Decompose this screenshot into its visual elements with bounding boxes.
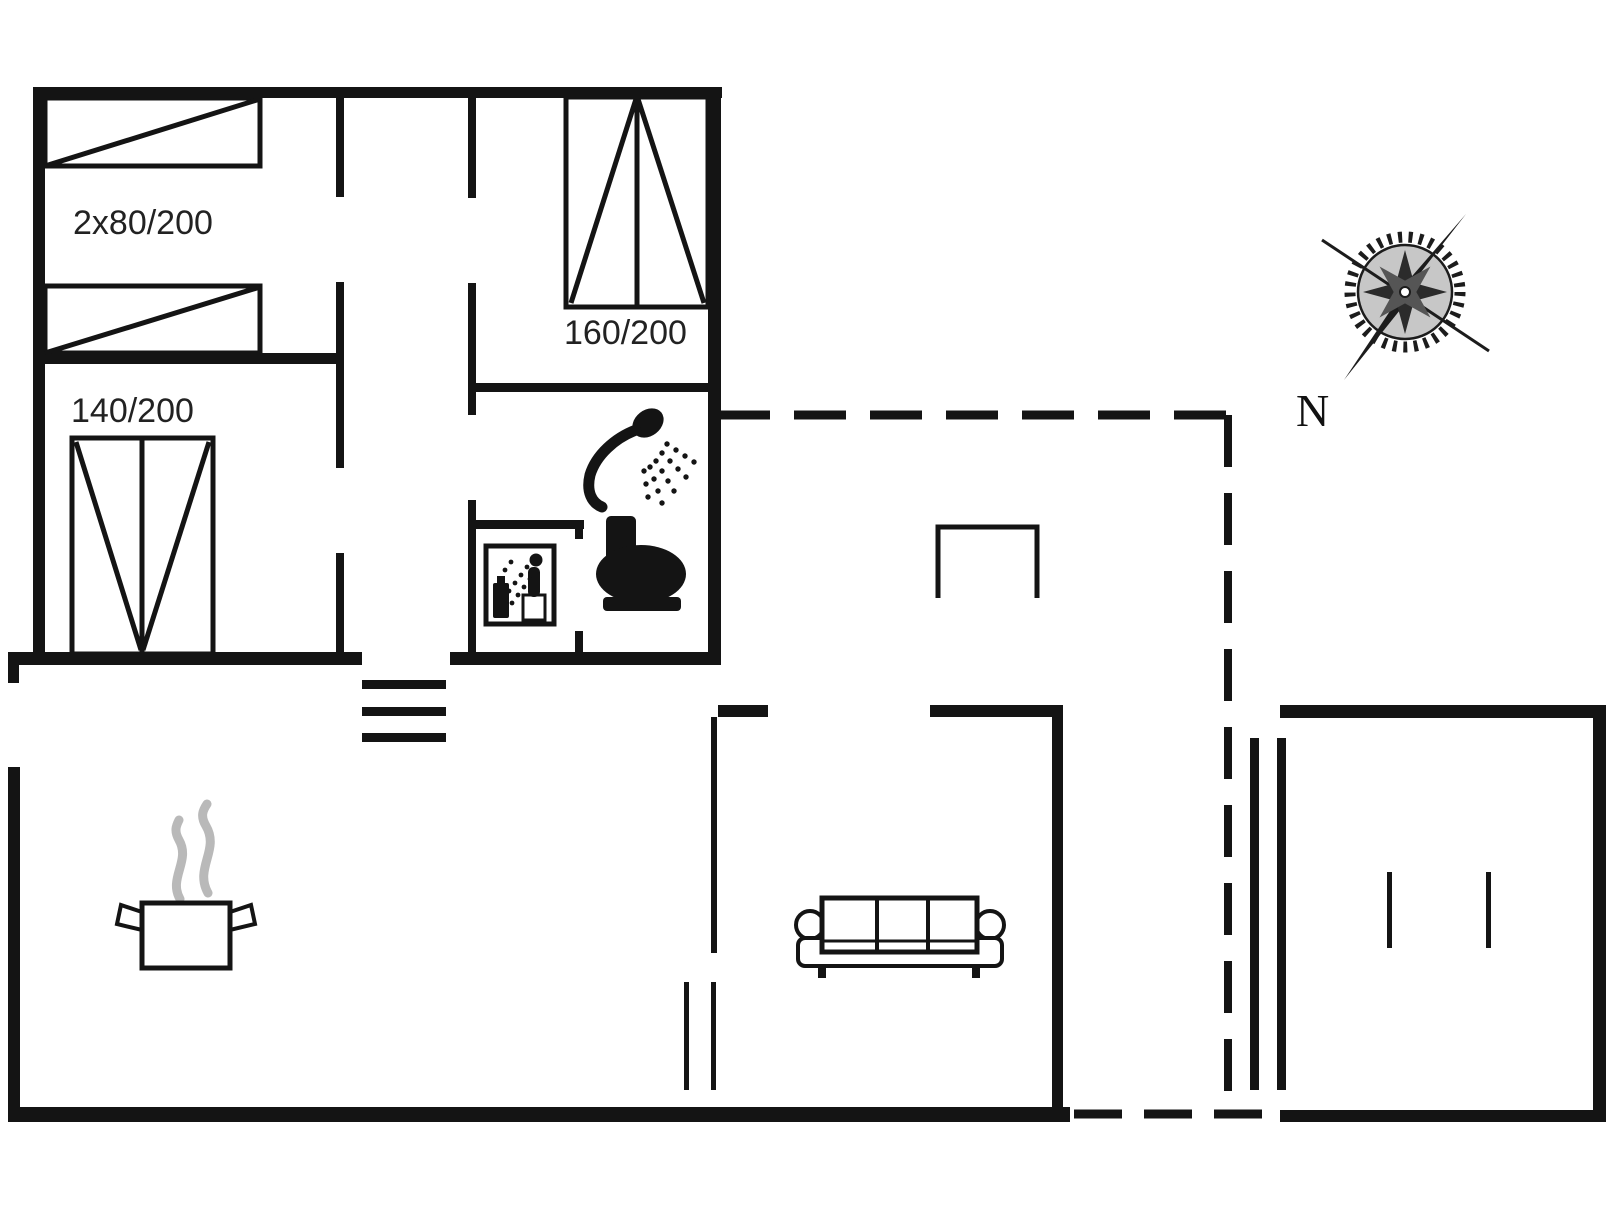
bed-icon (72, 438, 213, 654)
floor-plan-canvas: 2x80/200 140/200 160/200 N (0, 0, 1606, 1205)
bed-icon (566, 97, 708, 307)
steam-icon (176, 804, 210, 899)
furniture-layer (0, 0, 1606, 1205)
cooking-pot-icon (117, 903, 255, 968)
shower-icon (589, 402, 697, 507)
bunk-beds-label: 2x80/200 (73, 204, 213, 243)
double-bed-label: 140/200 (71, 392, 194, 431)
north-label: N (1296, 384, 1329, 437)
toilet-icon (596, 516, 686, 611)
sofa-icon (796, 898, 1004, 978)
compass-rose-icon (1322, 214, 1489, 380)
terrace-dashed-boundary (718, 415, 1282, 1117)
terrace-opening-icon (938, 527, 1037, 598)
large-bed-label: 160/200 (564, 314, 687, 353)
cleaning-room-icon (486, 546, 554, 624)
